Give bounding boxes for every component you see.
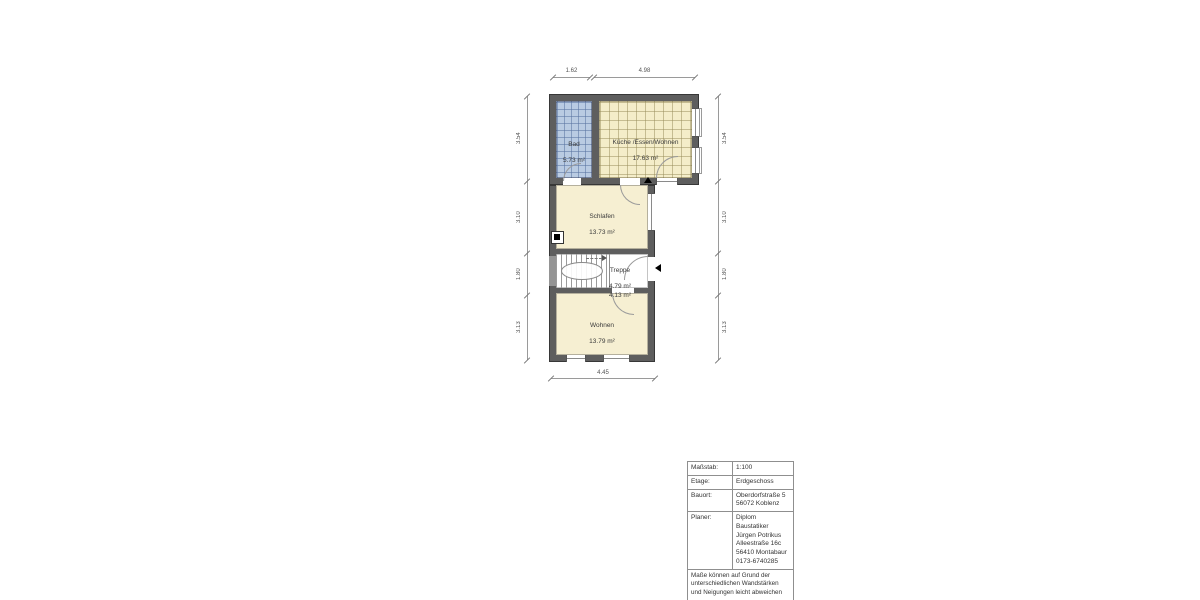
window-sill-kueche-2 — [699, 147, 702, 174]
label-bad: Bad 5.73 m² — [556, 133, 592, 166]
window-schlafen — [648, 193, 655, 231]
label-wohnen: Wohnen 13.79 m² — [556, 314, 648, 347]
label-kueche-name: Küche /Essen/Wohnen — [612, 139, 678, 146]
dim-left-line — [527, 96, 528, 360]
label-schlafen-area: 13.73 m² — [589, 229, 615, 236]
dim-bottom-line — [551, 378, 655, 379]
title-block-label: Etage: — [688, 476, 733, 489]
window-kueche-1 — [692, 108, 699, 137]
door-kueche-opening — [656, 178, 678, 185]
title-block-value: Oberdorfstraße 5 56072 Koblenz — [733, 490, 793, 512]
label-schlafen-name: Schlafen — [589, 213, 614, 220]
dim-left-1: 3.54 — [516, 124, 522, 152]
dim-right-3: 1.80 — [722, 260, 728, 288]
label-bad-area: 5.73 m² — [563, 157, 585, 164]
dim-top-line-1 — [553, 77, 590, 78]
title-block-label: Bauort: — [688, 490, 733, 512]
title-block-row-massstab: Maßstab: 1:100 — [688, 462, 793, 476]
title-block-label: Maßstab: — [688, 462, 733, 475]
entrance-marker-treppe-icon — [655, 264, 661, 272]
low-wall-stair — [549, 256, 556, 286]
label-treppe-area: 4.79 m² 4.13 m² — [609, 283, 631, 298]
title-block-label: Planer: — [688, 512, 733, 569]
title-block-value: Erdgeschoss — [733, 476, 793, 489]
label-bad-name: Bad — [568, 141, 580, 148]
dim-top-1: 1.62 — [553, 68, 590, 74]
door-schlafen-opening — [620, 178, 640, 185]
label-treppe-name: Treppe — [610, 267, 630, 274]
title-block-value: Diplom Baustatiker Jürgen Potrikus Allee… — [733, 512, 793, 569]
title-block-note: Maße können auf Grund der unterschiedlic… — [688, 570, 793, 600]
dim-bottom-1: 4.45 — [551, 370, 655, 376]
label-kueche-area: 17.63 m² — [633, 155, 659, 162]
label-wohnen-area: 13.79 m² — [589, 338, 615, 345]
dim-left-4: 3.13 — [516, 313, 522, 341]
label-treppe: Treppe 4.79 m² 4.13 m² — [598, 259, 642, 300]
title-block-row-etage: Etage: Erdgeschoss — [688, 476, 793, 490]
label-wohnen-name: Wohnen — [590, 322, 614, 329]
window-sill-kueche-1 — [699, 108, 702, 137]
staircase-eye — [561, 262, 603, 280]
window-kueche-2 — [692, 147, 699, 174]
dim-top-line-2 — [594, 77, 695, 78]
dim-top-2: 4.98 — [594, 68, 695, 74]
dim-tick — [715, 357, 721, 363]
label-kueche: Küche /Essen/Wohnen 17.63 m² — [599, 131, 692, 164]
title-block: Maßstab: 1:100 Etage: Erdgeschoss Bauort… — [687, 461, 794, 600]
door-treppe-opening — [648, 257, 655, 281]
dim-right-4: 3.13 — [722, 313, 728, 341]
title-block-value: 1:100 — [733, 462, 793, 475]
dim-left-2: 3.10 — [516, 203, 522, 231]
dim-right-2: 3.10 — [722, 203, 728, 231]
dim-right-line — [718, 96, 719, 360]
dim-right-1: 3.54 — [722, 124, 728, 152]
window-wohnen-2 — [603, 355, 630, 362]
label-schlafen: Schlafen 13.73 m² — [556, 205, 648, 238]
title-block-row-planer: Planer: Diplom Baustatiker Jürgen Potrik… — [688, 512, 793, 570]
dim-tick — [524, 357, 530, 363]
dim-left-3: 1.80 — [516, 260, 522, 288]
architectural-drawing: Bad 5.73 m² Küche /Essen/Wohnen 17.63 m²… — [0, 0, 1200, 600]
dim-tick — [692, 74, 698, 80]
entrance-marker-kueche-icon — [644, 177, 652, 183]
dim-tick — [652, 375, 658, 381]
title-block-row-bauort: Bauort: Oberdorfstraße 5 56072 Koblenz — [688, 490, 793, 513]
window-wohnen-1 — [566, 355, 586, 362]
